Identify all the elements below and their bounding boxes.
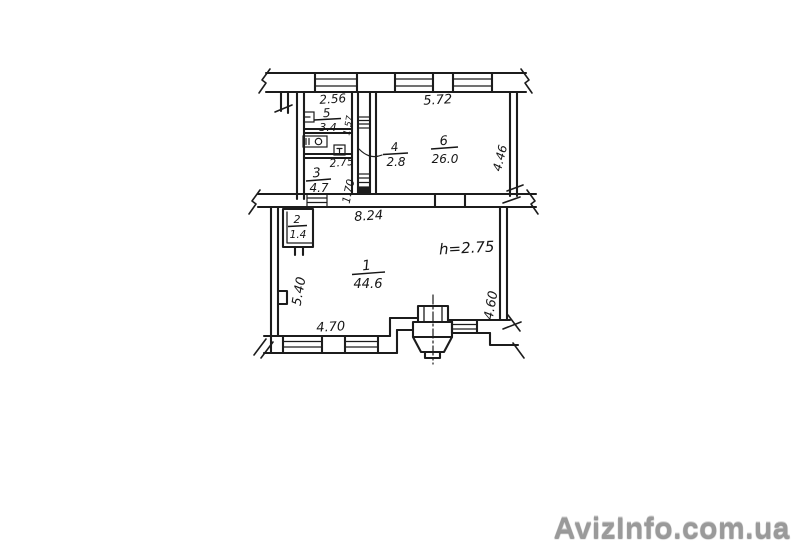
dim-upper-left-width: 2.56 (319, 91, 347, 107)
dim-corridor-width: 2.75 (329, 155, 355, 170)
room-number: 4 (390, 140, 399, 155)
room-number: 5 (322, 106, 331, 120)
room-number: 2 (294, 213, 301, 226)
dim-lower-bottom-width: 4.70 (316, 319, 346, 335)
bathtub-icon (303, 136, 327, 147)
dim-lower-left-height: 5.40 (290, 276, 310, 307)
room-area: 4.7 (309, 181, 328, 195)
dim-corridor-length: 1.70 (340, 178, 358, 205)
floor-plan: 5 3.4 3 4.7 4 2.8 6 (0, 0, 800, 548)
dim-lower-width: 8.24 (354, 208, 384, 225)
room-area: 26.0 (432, 152, 459, 166)
floor-plan-drawing: 5 3.4 3 4.7 4 2.8 6 (0, 0, 800, 548)
scanned-page: 5 3.4 3 4.7 4 2.8 6 (0, 0, 800, 548)
room-number: 1 (362, 258, 372, 275)
room-number: 6 (439, 134, 448, 150)
dim-lower-right-height: 4.60 (482, 290, 502, 321)
room-number: 3 (312, 166, 322, 182)
dim-closet-depth: 1.57 (342, 115, 355, 137)
dim-upper-right-height: 4.46 (490, 143, 510, 173)
room-4-label: 4 2.8 (359, 140, 408, 169)
room-6-label: 6 26.0 (431, 134, 459, 166)
dim-upper-right-width: 5.72 (423, 92, 453, 108)
room-1-label: 1 44.6 (352, 258, 385, 292)
room-area: 2.8 (386, 155, 405, 169)
room-3-label: 3 4.7 (306, 166, 331, 195)
sink-icon (304, 112, 314, 122)
ceiling-height: h=2.75 (439, 238, 495, 259)
room-area: 1.4 (290, 229, 307, 241)
watermark-text: AvizInfo.com.ua (554, 512, 790, 546)
room-area: 3.4 (319, 121, 337, 134)
room-2-label: 2 1.4 (288, 213, 307, 241)
room-area: 44.6 (354, 277, 383, 292)
